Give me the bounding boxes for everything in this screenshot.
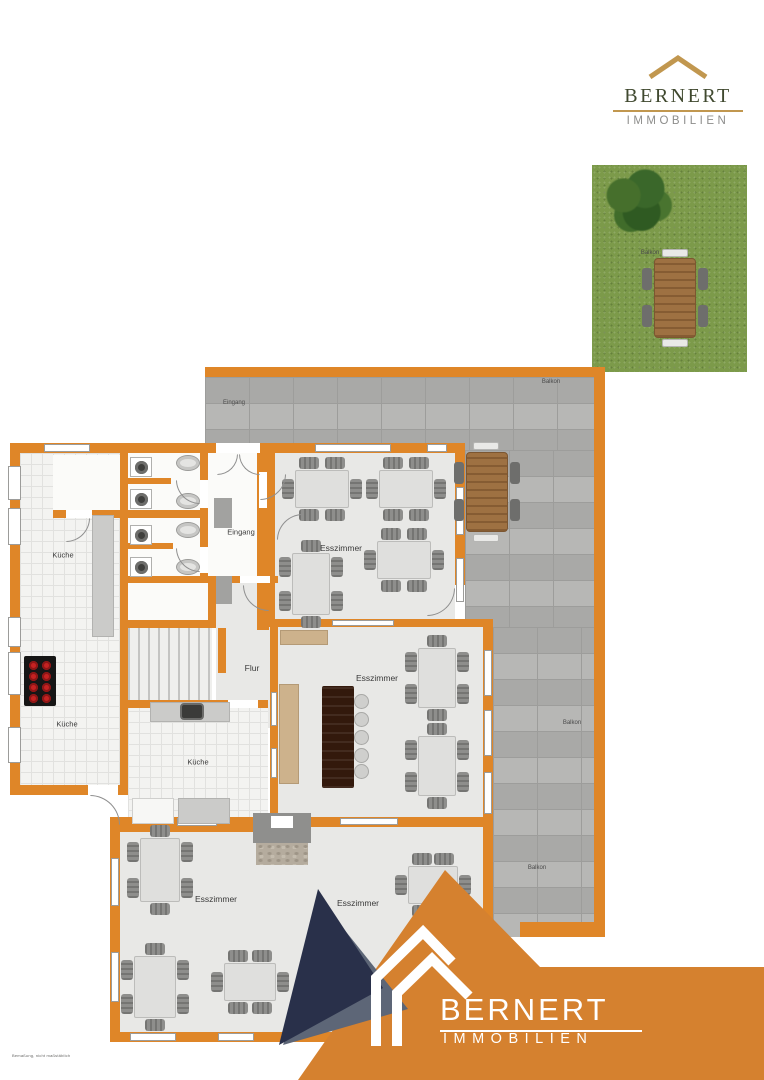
- window: [271, 692, 277, 726]
- kitchen-sink: [180, 703, 204, 720]
- room-label-esszimmer-middle: Esszimmer: [356, 673, 398, 683]
- balcony-chair: [454, 462, 464, 484]
- window: [484, 710, 492, 756]
- door-opening: [228, 700, 258, 708]
- chair: [409, 509, 429, 521]
- chair: [407, 528, 427, 540]
- stove-burner: [29, 661, 38, 670]
- balcony-chair: [510, 462, 520, 484]
- chair: [457, 740, 469, 760]
- window: [8, 466, 21, 500]
- window: [218, 1033, 254, 1041]
- chair: [252, 1002, 272, 1014]
- bar-stool: [354, 712, 369, 727]
- chair: [457, 652, 469, 672]
- window: [340, 818, 398, 825]
- washbasin: [176, 455, 200, 471]
- chair: [405, 684, 417, 704]
- toilet: [130, 489, 152, 509]
- wall-segment: [120, 620, 215, 628]
- window: [484, 772, 492, 814]
- wall-segment: [520, 922, 605, 937]
- chair: [350, 479, 362, 499]
- dining-table: [292, 553, 330, 615]
- chair: [457, 684, 469, 704]
- chair: [325, 457, 345, 469]
- brand-subtitle: IMMOBILIEN: [598, 115, 758, 127]
- garden-bench: [662, 249, 688, 257]
- dining-table: [295, 470, 349, 508]
- dining-table: [140, 838, 180, 902]
- stove-burner: [29, 683, 38, 692]
- cabinet: [216, 576, 232, 604]
- chair: [395, 875, 407, 895]
- bar-stool: [354, 764, 369, 779]
- chair: [381, 580, 401, 592]
- room-label-esszimmer-top: Esszimmer: [320, 543, 362, 553]
- staircase: [128, 628, 212, 700]
- room-label-balkon-low: Balkon: [528, 865, 546, 871]
- door-opening: [200, 480, 208, 508]
- chair: [121, 994, 133, 1014]
- window: [8, 617, 21, 647]
- chair: [301, 616, 321, 628]
- bar-stool: [354, 730, 369, 745]
- balcony-bench: [473, 534, 499, 542]
- window: [8, 508, 21, 545]
- window: [271, 748, 277, 778]
- brand-name-bottom: BERNERT: [440, 992, 642, 1032]
- chair: [366, 479, 378, 499]
- stove-burner: [29, 672, 38, 681]
- wall-segment: [120, 453, 128, 785]
- fireplace-hearth: [256, 843, 308, 865]
- window: [8, 652, 21, 695]
- room-label-balkon-top: Balkon: [542, 379, 560, 385]
- window: [484, 650, 492, 696]
- dining-table: [379, 470, 433, 508]
- chair: [457, 772, 469, 792]
- chair: [325, 509, 345, 521]
- chair: [127, 842, 139, 862]
- stove-burner: [42, 683, 51, 692]
- chair: [301, 540, 321, 552]
- cupboard: [279, 684, 299, 784]
- chair: [145, 943, 165, 955]
- bar-stool: [354, 694, 369, 709]
- balcony-floor: [493, 627, 594, 937]
- chair: [405, 652, 417, 672]
- room-label-esszimmer-bottom-b: Esszimmer: [337, 898, 379, 908]
- chair: [127, 878, 139, 898]
- washbasin: [176, 522, 200, 538]
- toilet: [130, 525, 152, 545]
- chair: [383, 509, 403, 521]
- bar-counter: [322, 686, 354, 788]
- chair: [432, 550, 444, 570]
- stove-burner: [42, 694, 51, 703]
- room-label-kueche-middle: Küche: [187, 758, 208, 767]
- wall-segment: [270, 627, 278, 827]
- room-floor: [128, 583, 208, 620]
- dining-table: [418, 736, 456, 796]
- door-opening: [88, 785, 118, 795]
- chair: [405, 772, 417, 792]
- window: [8, 727, 21, 763]
- brand-subtitle-bottom: IMMOBILIEN: [443, 1031, 593, 1047]
- room-label-kueche-lower: Küche: [56, 720, 77, 729]
- chair: [383, 457, 403, 469]
- dining-table: [224, 963, 276, 1001]
- chair: [150, 903, 170, 915]
- balcony-table: [466, 452, 508, 532]
- chair: [211, 972, 223, 992]
- chair: [409, 457, 429, 469]
- dining-table: [418, 648, 456, 708]
- stove-burner: [42, 672, 51, 681]
- chair: [434, 479, 446, 499]
- garden-balcony-area: [592, 165, 747, 372]
- room-label-eingang-balcony: Eingang: [223, 400, 245, 406]
- chair: [412, 853, 432, 865]
- chair: [228, 950, 248, 962]
- door-opening: [240, 576, 270, 583]
- chair: [279, 557, 291, 577]
- door-opening: [200, 547, 208, 573]
- brand-name: BERNERT: [598, 85, 758, 108]
- chair: [427, 635, 447, 647]
- garden-chair: [698, 305, 708, 327]
- window: [111, 858, 119, 906]
- sideboard: [280, 630, 328, 645]
- wall-segment: [125, 478, 171, 484]
- chair: [228, 1002, 248, 1014]
- garden-chair: [642, 268, 652, 290]
- door-opening: [216, 443, 260, 453]
- chair: [434, 853, 454, 865]
- floorplan-page: BERNERT IMMOBILIEN Eingang Balkon Balkon…: [0, 0, 764, 1080]
- chair: [277, 972, 289, 992]
- wall-segment: [594, 367, 605, 937]
- chair: [299, 457, 319, 469]
- wall-segment: [218, 628, 226, 673]
- chair: [427, 797, 447, 809]
- balcony-floor: [205, 377, 594, 450]
- stove-burner: [42, 661, 51, 670]
- brand-rule: [613, 110, 743, 112]
- stove-burner: [29, 694, 38, 703]
- chair: [181, 878, 193, 898]
- room-label-eingang: Eingang: [227, 528, 255, 537]
- window: [44, 444, 90, 452]
- stove: [24, 656, 56, 706]
- chair: [381, 528, 401, 540]
- chair: [407, 580, 427, 592]
- wall-segment: [205, 367, 605, 377]
- window: [111, 952, 119, 1002]
- garden-table: [654, 258, 696, 338]
- cabinet: [214, 498, 232, 528]
- chair: [331, 557, 343, 577]
- balcony-chair: [454, 499, 464, 521]
- chair: [331, 591, 343, 611]
- balcony-bench: [473, 442, 499, 450]
- wall-segment: [110, 817, 120, 1042]
- dining-table: [377, 541, 431, 579]
- fireplace-opening: [271, 816, 293, 828]
- room-label-esszimmer-bottom: Esszimmer: [195, 894, 237, 904]
- storeroom-floor: [53, 455, 120, 510]
- chair: [405, 740, 417, 760]
- garden-chair: [642, 305, 652, 327]
- toilet: [130, 457, 152, 477]
- chair: [177, 960, 189, 980]
- door-opening: [66, 510, 92, 518]
- room-label-balkon-garden: Balkon: [641, 250, 659, 256]
- plan-footnote: Bemaßung, nicht maßstäblich: [12, 1053, 70, 1058]
- toilet: [130, 557, 152, 577]
- chair: [364, 550, 376, 570]
- bar-stool: [354, 748, 369, 763]
- garden-chair: [698, 268, 708, 290]
- room-label-kueche-upper: Küche: [52, 551, 73, 560]
- bernert-logo-top: BERNERT IMMOBILIEN: [598, 55, 758, 127]
- balcony-chair: [510, 499, 520, 521]
- kitchen-counter: [178, 798, 230, 824]
- room-label-balkon-mid: Balkon: [563, 720, 581, 726]
- chair: [177, 994, 189, 1014]
- kitchen-table: [132, 798, 174, 824]
- room-label-flur: Flur: [245, 663, 260, 673]
- chair: [121, 960, 133, 980]
- chair: [427, 723, 447, 735]
- chair: [252, 950, 272, 962]
- window: [130, 1033, 176, 1041]
- window: [332, 620, 394, 626]
- dining-table: [134, 956, 176, 1018]
- wall-segment: [208, 578, 216, 628]
- chair: [181, 842, 193, 862]
- chair: [427, 709, 447, 721]
- kitchen-counter: [92, 515, 114, 637]
- tree-icon: [602, 169, 674, 235]
- door-swing: [90, 795, 120, 825]
- window: [456, 558, 464, 602]
- roof-icon: [646, 55, 710, 79]
- chair: [150, 825, 170, 837]
- window: [315, 444, 391, 452]
- garden-bench: [662, 339, 688, 347]
- window: [427, 444, 447, 452]
- chair: [279, 591, 291, 611]
- chair: [145, 1019, 165, 1031]
